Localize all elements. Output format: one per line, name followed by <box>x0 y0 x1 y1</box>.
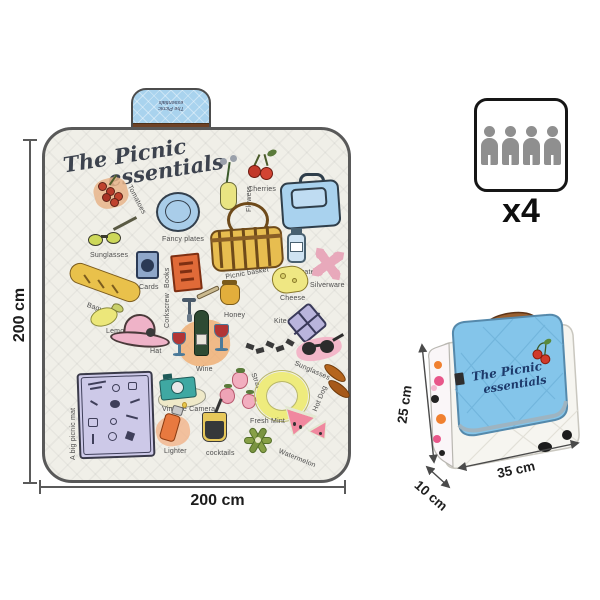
folded-blanket-figure: The Picnic essentials 25 cm 10 cm 35 cm <box>395 293 600 533</box>
person-icon <box>502 126 519 165</box>
person-icon <box>523 126 540 165</box>
height-dimension-cap-top <box>23 139 37 141</box>
person-body <box>544 138 561 165</box>
person-body <box>481 138 498 165</box>
person-icon <box>544 126 561 165</box>
person-head <box>547 126 558 137</box>
capacity-card <box>474 98 568 192</box>
width-dimension-line <box>40 486 345 488</box>
tab-logo-line1: The Picnic <box>133 105 209 111</box>
height-dimension-line <box>29 140 31 483</box>
height-dimension-cap-bottom <box>23 482 37 484</box>
flap-tag <box>454 372 465 385</box>
tab-logo-line2: essentials <box>133 99 209 105</box>
person-head <box>505 126 516 137</box>
blanket-height-label: 200 cm <box>11 280 29 350</box>
person-icon <box>481 126 498 165</box>
tab-logo-text: The Picnic essentials <box>133 99 209 111</box>
capacity-count: x4 <box>474 192 568 231</box>
person-body <box>502 138 519 165</box>
page: { "blanket": { "title_line1": "The Picni… <box>0 0 600 600</box>
person-head <box>526 126 537 137</box>
person-body <box>523 138 540 165</box>
width-dimension-cap-left <box>39 480 41 494</box>
width-dimension-cap-right <box>344 480 346 494</box>
folded-height-label: 25 cm <box>395 384 415 424</box>
folded-width-label: 35 cm <box>496 458 537 481</box>
blanket-width-label: 200 cm <box>165 492 270 510</box>
person-head <box>484 126 495 137</box>
